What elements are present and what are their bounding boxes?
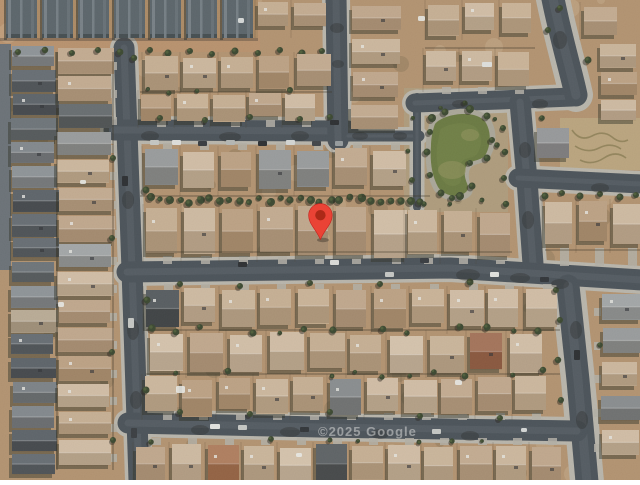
svg-text:©2025 Google: ©2025 Google — [318, 424, 417, 439]
